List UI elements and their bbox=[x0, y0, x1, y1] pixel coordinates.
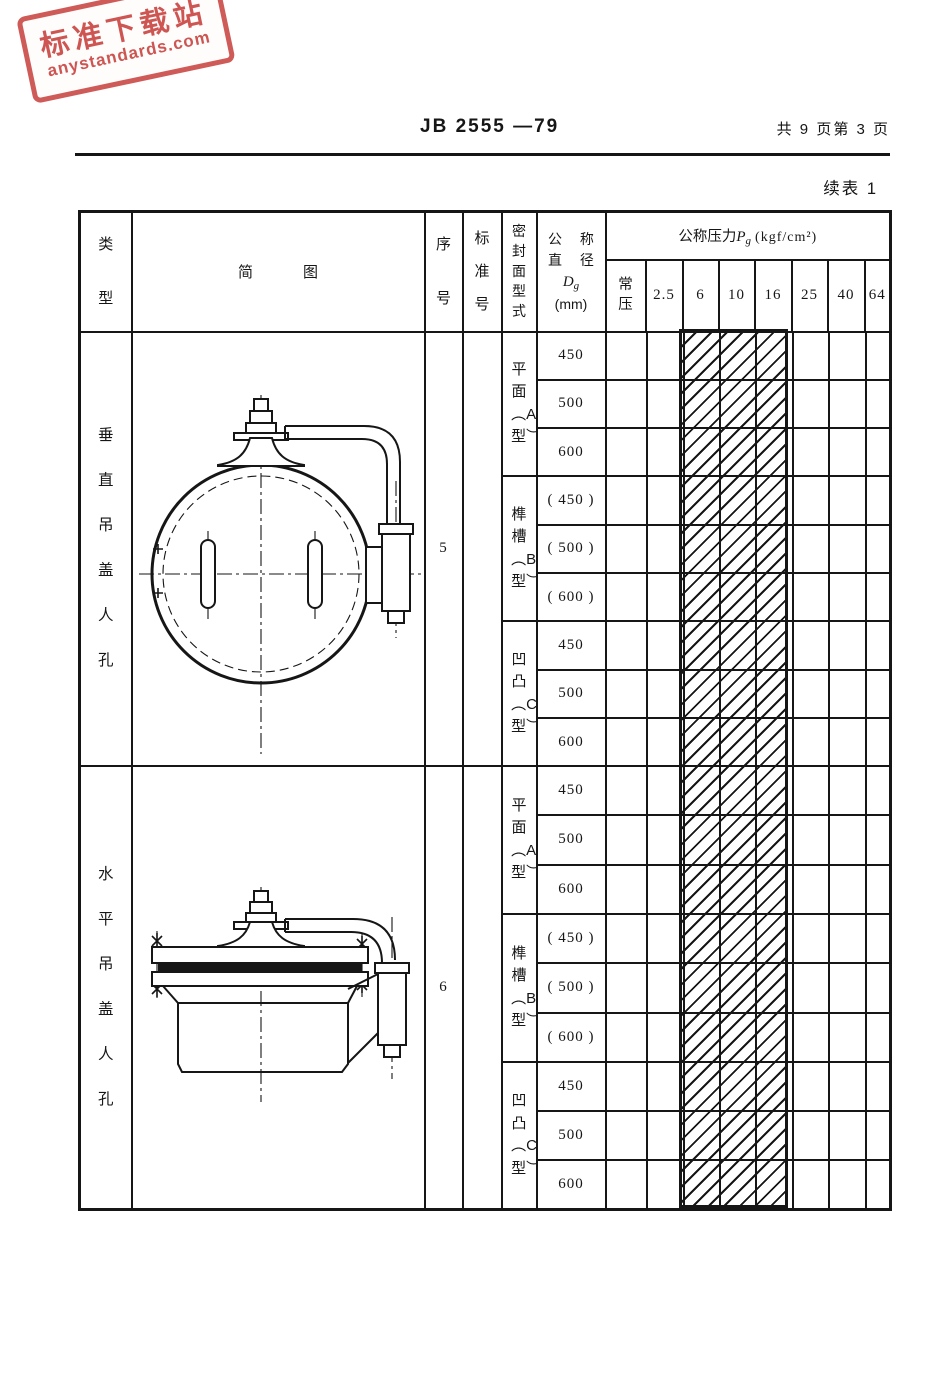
diameter-cell: 450 bbox=[537, 621, 606, 669]
diameter-cell: ( 600 ) bbox=[537, 573, 606, 621]
diameter-cell: ( 450 ) bbox=[537, 476, 606, 524]
vessel-body bbox=[163, 986, 357, 1072]
pressure-grid-row bbox=[606, 963, 891, 1012]
diameter-label-line2: 直 径 bbox=[538, 250, 606, 271]
pressure-grid-row bbox=[606, 766, 891, 815]
pressure-col-header-4: 16 bbox=[755, 260, 792, 332]
flange-pair bbox=[152, 947, 368, 986]
header-diagram: 简图 bbox=[132, 212, 425, 332]
header-serial: 序号 bbox=[425, 212, 463, 332]
standard-cell: JB 583 —79 bbox=[463, 766, 502, 1210]
diameter-cell: 600 bbox=[537, 428, 606, 476]
type-cell: 垂直吊盖人孔 bbox=[80, 332, 132, 767]
serial-cell: 6 bbox=[425, 766, 463, 1210]
diameter-cell: 600 bbox=[537, 718, 606, 766]
pressure-grid-row bbox=[606, 428, 891, 476]
page-count-info: 共 9 页第 3 页 bbox=[690, 118, 890, 139]
pressure-grid-row bbox=[606, 1111, 891, 1160]
table-caption: 续表 1 bbox=[758, 175, 878, 199]
vertical-manhole-diagram bbox=[133, 333, 425, 764]
pressure-grid-row bbox=[606, 865, 891, 914]
gasket bbox=[159, 965, 361, 970]
seal-type-cell: 平面︵A型︶ bbox=[502, 766, 537, 914]
standard-cell: JB 582 —79 bbox=[463, 332, 502, 767]
seal-type-cell: 榫槽︵B型︶ bbox=[502, 914, 537, 1062]
header-nominal-diameter: 公 称 直 径 Dg (mm) bbox=[537, 212, 606, 332]
pressure-col-header-2: 6 bbox=[683, 260, 719, 332]
pressure-col-header-6: 40 bbox=[828, 260, 865, 332]
diameter-cell: 500 bbox=[537, 1111, 606, 1160]
pressure-grid-row bbox=[606, 573, 891, 621]
diameter-cell: 450 bbox=[537, 332, 606, 380]
seal-type-cell: 榫槽︵B型︶ bbox=[502, 476, 537, 621]
header-standard: 标准号 bbox=[463, 212, 502, 332]
header-nominal-pressure: 公称压力Pg(kgf/cm²) bbox=[606, 212, 891, 260]
pressure-grid-row bbox=[606, 1160, 891, 1209]
pressure-grid-row bbox=[606, 332, 891, 380]
seal-type-cell: 凹凸︵C型︶ bbox=[502, 1062, 537, 1210]
header-seal-type: 密封面型式 bbox=[502, 212, 537, 332]
pressure-grid-row bbox=[606, 815, 891, 864]
pressure-grid-row bbox=[606, 1062, 891, 1112]
diameter-cell: ( 500 ) bbox=[537, 525, 606, 573]
pressure-col-header-7: 64 bbox=[865, 260, 891, 332]
diameter-label-line1: 公 称 bbox=[538, 229, 606, 250]
diameter-unit: (mm) bbox=[538, 294, 605, 315]
diameter-cell: ( 600 ) bbox=[537, 1013, 606, 1062]
pressure-grid-row bbox=[606, 718, 891, 766]
seal-type-cell: 平面︵A型︶ bbox=[502, 332, 537, 477]
pressure-grid-row bbox=[606, 380, 891, 428]
pressure-col-header-3: 10 bbox=[719, 260, 755, 332]
document-page: 标准下载站 anystandards.com JB 2555 —79 共 9 页… bbox=[0, 0, 950, 1396]
diameter-cell: ( 500 ) bbox=[537, 963, 606, 1012]
standard-document-number: JB 2555 —79 bbox=[420, 116, 559, 138]
header-type: 类型 bbox=[80, 212, 132, 332]
pressure-grid-row bbox=[606, 914, 891, 964]
pressure-grid-row bbox=[606, 670, 891, 718]
diameter-cell: 450 bbox=[537, 1062, 606, 1112]
yoke-bolt-assembly bbox=[218, 399, 304, 466]
watermark-stamp: 标准下载站 anystandards.com bbox=[16, 0, 236, 104]
type-cell: 水平吊盖人孔 bbox=[80, 766, 132, 1210]
diameter-cell: 450 bbox=[537, 766, 606, 815]
serial-cell: 5 bbox=[425, 332, 463, 767]
hinge-sleeve bbox=[366, 524, 413, 623]
diameter-symbol: Dg bbox=[538, 271, 605, 295]
header-rule bbox=[75, 153, 890, 156]
pressure-grid-row bbox=[606, 525, 891, 573]
diameter-cell: 500 bbox=[537, 670, 606, 718]
pressure-grid-row bbox=[606, 476, 891, 524]
pressure-col-header-5: 25 bbox=[792, 260, 828, 332]
manhole-spec-table: 类型 简图 序号 标准号 密封面型式 公 称 直 径 Dg (mm) 公称压力P… bbox=[78, 210, 892, 1211]
pressure-grid-row bbox=[606, 1013, 891, 1062]
pressure-col-header-0: 常压 bbox=[606, 260, 646, 332]
seal-type-cell: 凹凸︵C型︶ bbox=[502, 621, 537, 766]
horizontal-manhole-diagram bbox=[133, 767, 425, 1208]
diameter-cell: 500 bbox=[537, 380, 606, 428]
table-wrapper: 类型 简图 序号 标准号 密封面型式 公 称 直 径 Dg (mm) 公称压力P… bbox=[78, 210, 892, 1211]
diameter-cell: 600 bbox=[537, 1160, 606, 1209]
pressure-grid-row bbox=[606, 621, 891, 669]
pressure-col-header-1: 2.5 bbox=[646, 260, 683, 332]
diameter-cell: ( 450 ) bbox=[537, 914, 606, 964]
diagram-cell bbox=[132, 332, 425, 767]
diameter-cell: 600 bbox=[537, 865, 606, 914]
diagram-cell bbox=[132, 766, 425, 1210]
davit-arm bbox=[285, 426, 400, 524]
diameter-cell: 500 bbox=[537, 815, 606, 864]
